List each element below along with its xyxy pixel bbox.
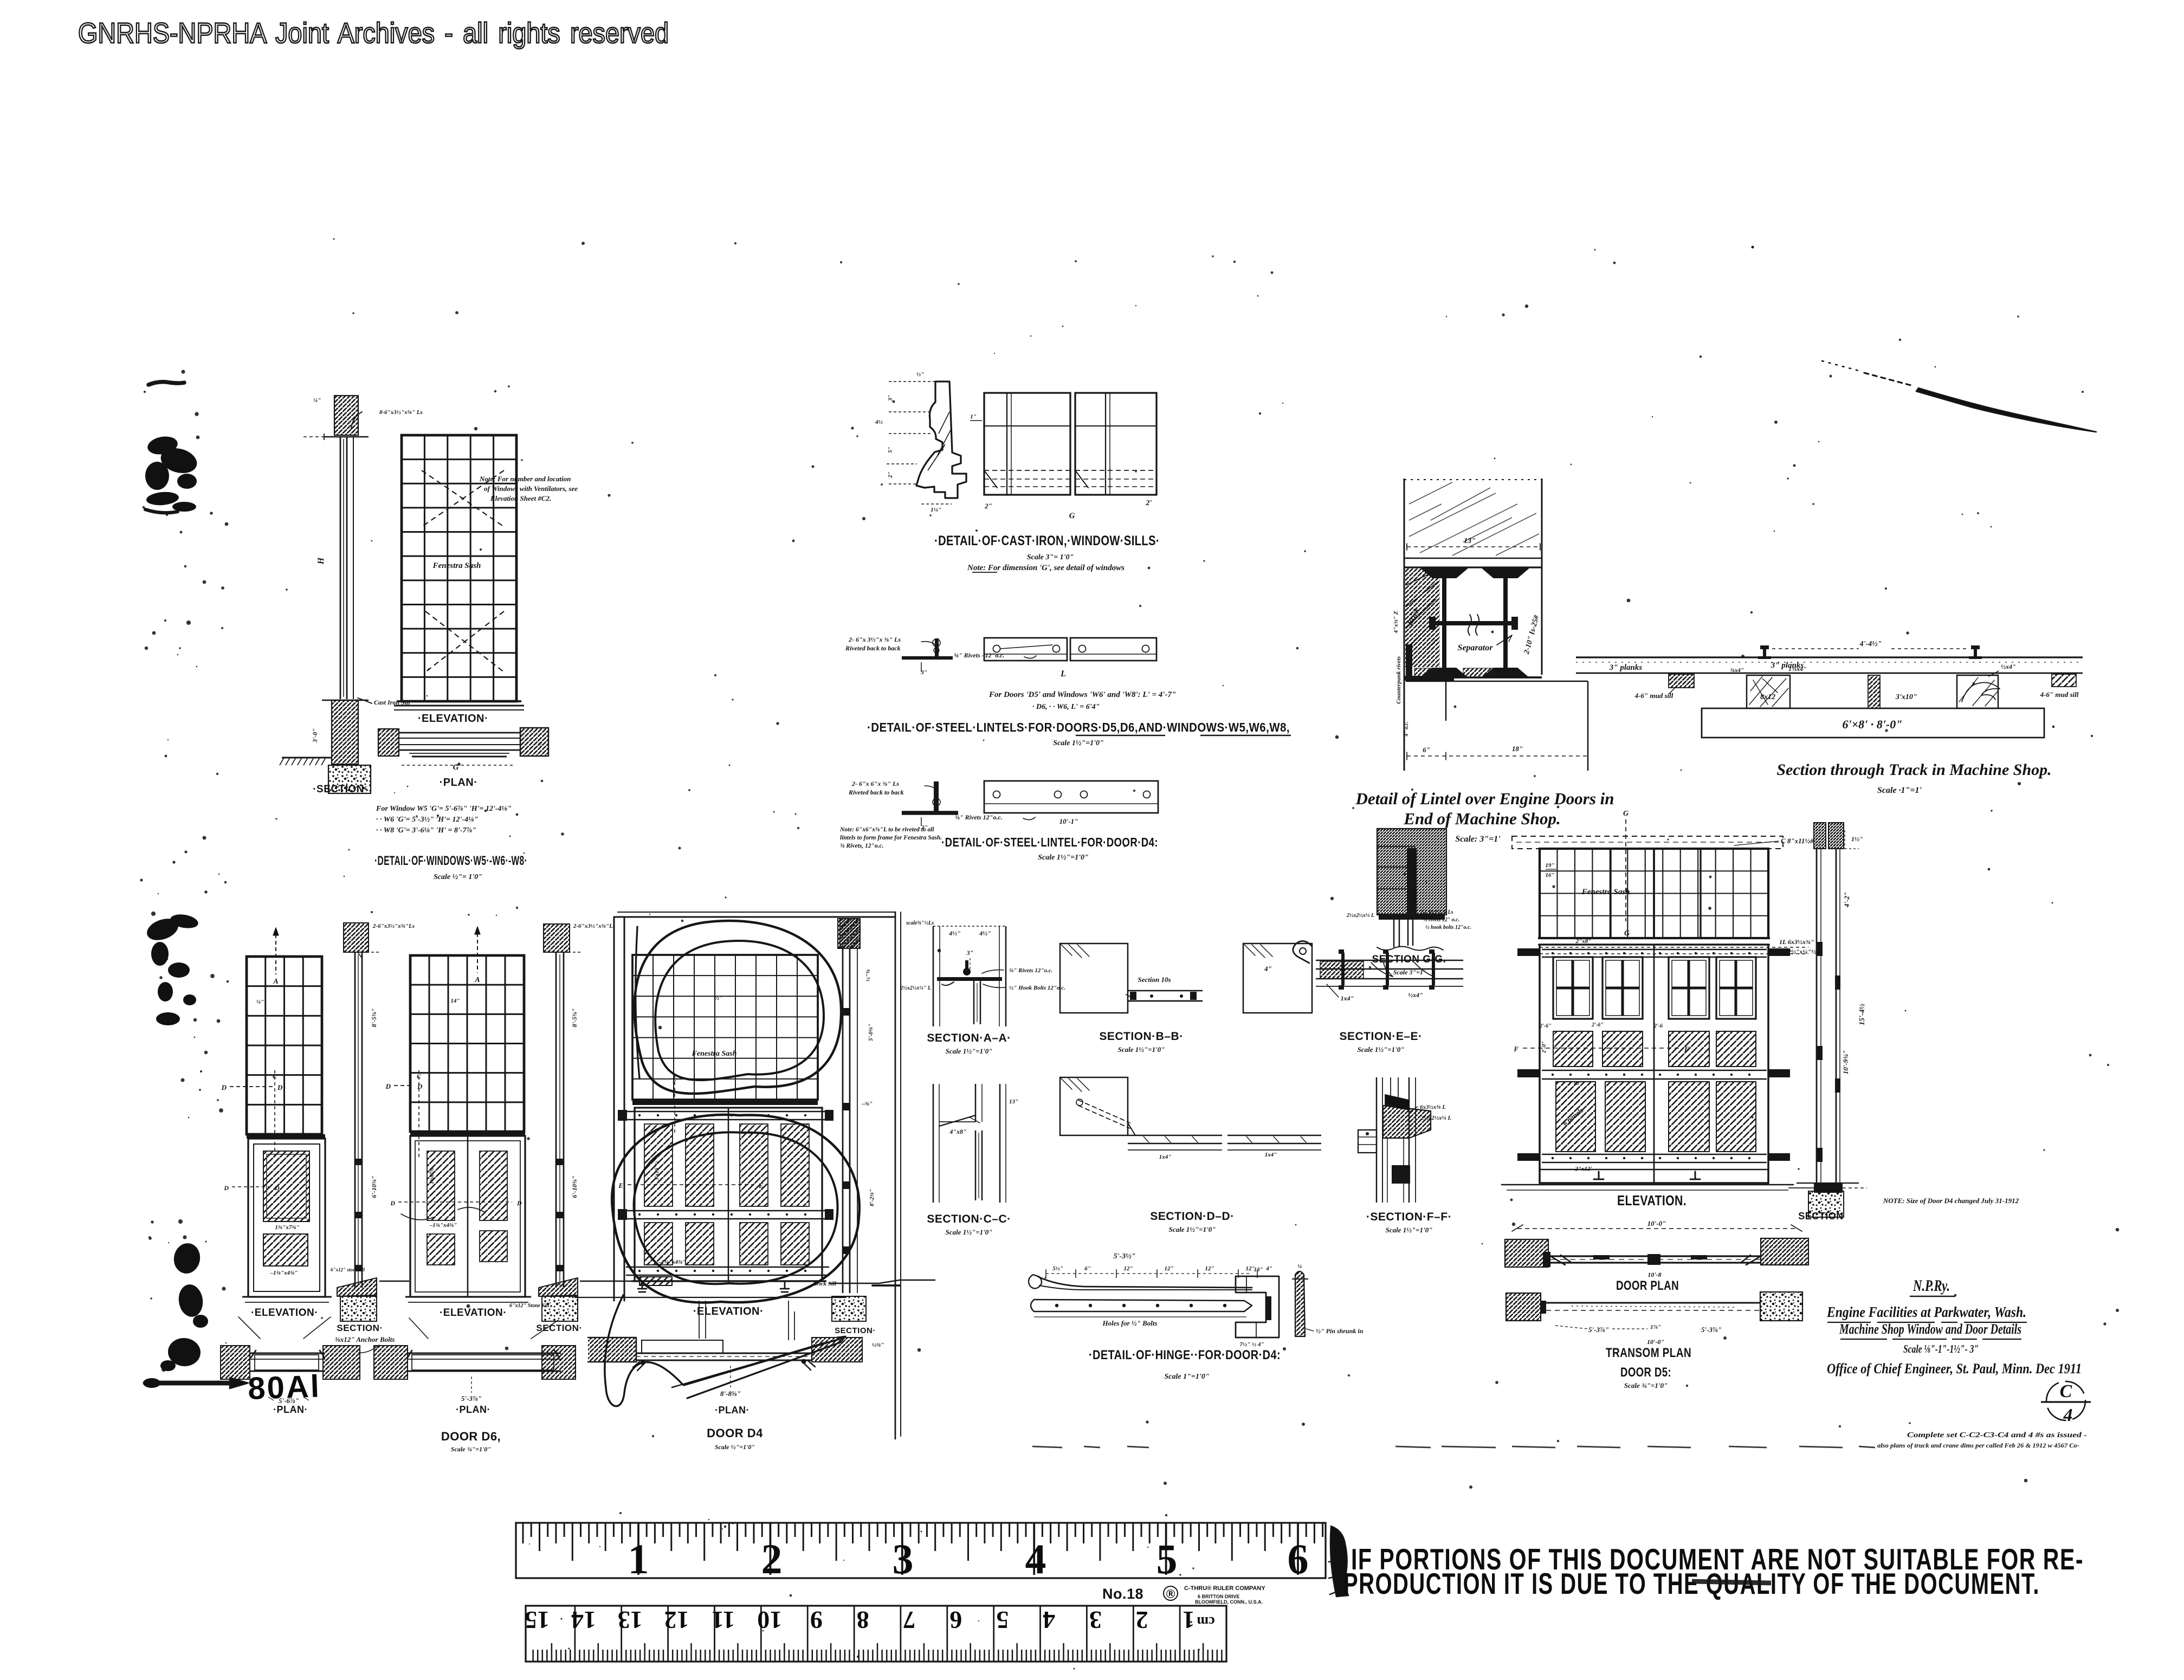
- svg-text:3'-0": 3'-0": [311, 728, 319, 743]
- svg-text:10: 10: [757, 1606, 782, 1634]
- svg-text:–1⅜"x4⅜": –1⅜"x4⅜": [429, 1222, 457, 1229]
- svg-text:4'-4½": 4'-4½": [1859, 640, 1882, 648]
- svg-text:8'-5⅜": 8'-5⅜": [370, 1009, 378, 1028]
- svg-text:Scale ½"=1'0": Scale ½"=1'0": [715, 1443, 755, 1451]
- svg-text:Scale ·1"=1': Scale ·1"=1': [1877, 786, 1922, 795]
- svg-text:Scale ¾"=1'0": Scale ¾"=1'0": [1624, 1381, 1668, 1390]
- svg-text:Fenestra Sash: Fenestra Sash: [432, 561, 481, 570]
- svg-text:Scale 1½"=1'0": Scale 1½"=1'0": [946, 1228, 993, 1236]
- svg-text:Scale 1½"=1'0": Scale 1½"=1'0": [1118, 1045, 1165, 1054]
- svg-text:Section 10s: Section 10s: [1138, 975, 1171, 984]
- svg-text:4" o.c.: 4" o.c.: [1404, 721, 1410, 737]
- svg-text:Note: For number and location: Note: For number and location: [479, 475, 571, 483]
- svg-text:1": 1": [970, 413, 977, 420]
- svg-text:D: D: [390, 1199, 395, 1207]
- svg-text:1L 6x3½x⅜": 1L 6x3½x⅜": [1779, 938, 1814, 946]
- svg-text:of Windows with Ventilators, s: of Windows with Ventilators, see: [484, 484, 578, 493]
- svg-text:·DETAIL·OF·WINDOWS·W5·-W6·-W8·: ·DETAIL·OF·WINDOWS·W5·-W6·-W8·: [374, 854, 527, 868]
- svg-text:2': 2': [1146, 499, 1152, 507]
- svg-text:3: 3: [893, 1535, 914, 1582]
- svg-text:Fenestra Sash.: Fenestra Sash.: [1581, 888, 1632, 896]
- svg-text:½ hook bolts 12"o.c.: ½ hook bolts 12"o.c.: [1425, 925, 1471, 931]
- svg-text:6"x12" stone sill: 6"x12" stone sill: [331, 1267, 365, 1272]
- svg-text:6": 6": [1423, 746, 1430, 754]
- svg-text:¼": ¼": [313, 397, 321, 404]
- svg-text:SЕCTION·Е–Е·: SЕCTION·Е–Е·: [1339, 1030, 1422, 1043]
- svg-text:C: C: [2060, 1381, 2072, 1401]
- svg-text:2'-0": 2'-0": [1541, 1041, 1547, 1054]
- svg-text:4½: 4½: [875, 419, 883, 425]
- svg-text:¼": ¼": [538, 739, 544, 746]
- svg-text:·PLAN·: ·PLAN·: [440, 777, 478, 789]
- svg-text:6: 6: [949, 1606, 962, 1634]
- svg-text:2": 2": [887, 471, 894, 479]
- svg-text:⅜" Rivets 12"o.c.: ⅜" Rivets 12"o.c.: [1009, 967, 1052, 974]
- svg-text:·DETAIL·OF·CAST·IRON,·WINDOW·S: ·DETAIL·OF·CAST·IRON,·WINDOW·SILLS·: [934, 533, 1160, 548]
- svg-text:½": ½": [714, 994, 723, 1001]
- svg-text:DOOR D4: DOOR D4: [707, 1426, 763, 1440]
- svg-text:6'-10⅜": 6'-10⅜": [370, 1176, 378, 1198]
- svg-text:8'-5⅜": 8'-5⅜": [571, 1009, 578, 1028]
- svg-text:10'-8: 10'-8: [1647, 1271, 1661, 1278]
- svg-text:2-L 6x3½ ⅜ Ls: 2-L 6x3½ ⅜ Ls: [1419, 909, 1453, 915]
- svg-text:2½x2½x¼ L: 2½x2½x¼ L: [1346, 913, 1374, 919]
- svg-text:8-6"x3½"x⅝" Ls: 8-6"x3½"x⅝" Ls: [379, 409, 423, 416]
- svg-text:C: C: [417, 1072, 422, 1080]
- svg-text:12": 12": [1205, 1265, 1214, 1272]
- svg-text:2'-6: 2'-6: [1653, 1023, 1663, 1029]
- svg-text:Office of Chief Engineer, S: Office of Chief Engineer, St. Paul, Minn…: [1827, 1361, 2082, 1377]
- svg-text:5": 5": [887, 447, 894, 453]
- svg-text:4'-2": 4'-2": [1843, 892, 1851, 908]
- svg-text:15: 15: [525, 1606, 550, 1634]
- svg-text:10'-0": 10'-0": [1647, 1338, 1664, 1346]
- svg-text:1: 1: [628, 1535, 649, 1582]
- svg-text:G: G: [1623, 810, 1629, 818]
- svg-text:G: G: [1624, 929, 1630, 938]
- svg-text:1⅜"x7⅜": 1⅜"x7⅜": [275, 1224, 299, 1231]
- svg-text:·ЕLЕVATION·: ·ЕLЕVATION·: [418, 713, 488, 725]
- svg-text:D: D: [516, 1199, 522, 1207]
- svg-text:F: F: [1513, 1045, 1519, 1053]
- svg-text:4: 4: [1025, 1535, 1046, 1582]
- svg-text:5½": 5½": [1052, 1265, 1063, 1272]
- svg-text:1⅞": 1⅞": [1650, 1324, 1661, 1330]
- svg-text:Scale ⅛"-1"-1½"- 3": Scale ⅛"-1"-1½"- 3": [1903, 1342, 1979, 1355]
- svg-text:3: 3: [1089, 1606, 1102, 1634]
- svg-text:15'-4½: 15'-4½: [1858, 1003, 1866, 1025]
- svg-text:16": 16": [1545, 872, 1554, 878]
- svg-text:Detail of Lintel over Engine D: Detail of Lintel over Engine Doors in: [1355, 789, 1614, 808]
- svg-text:DOOR D5:: DOOR D5:: [1620, 1365, 1671, 1380]
- svg-text:Scale ½"= 1'0": Scale ½"= 1'0": [434, 873, 482, 881]
- svg-text:Scale: 3"=1': Scale: 3"=1': [1455, 835, 1501, 844]
- svg-text:1x4": 1x4": [1265, 1152, 1277, 1158]
- svg-text:C: C: [273, 1072, 277, 1080]
- svg-text:⅜x4": ⅜x4": [1730, 667, 1744, 674]
- svg-text:8: 8: [857, 1606, 869, 1634]
- svg-text:·PLAN·: ·PLAN·: [456, 1404, 490, 1415]
- svg-text:NOTE: Size of Door D4 changed: NOTE: Size of Door D4 changed July 31-19…: [1883, 1197, 2019, 1205]
- svg-text:·DЕTAIL·OF·HINGЕ··FOR·DOOR·D4:: ·DЕTAIL·OF·HINGЕ··FOR·DOOR·D4:: [1089, 1348, 1281, 1362]
- svg-text:ЕLЕVATION.: ЕLЕVATION.: [1617, 1192, 1687, 1209]
- svg-text:6: 6: [1288, 1535, 1309, 1582]
- svg-text:For Window W5 'G'= 5'-6⅞": For Window W5 'G'= 5'-6⅞" 'H'= 12'-4⅛": [376, 805, 512, 813]
- svg-text:For Doors 'D5' and Windows 'W6: For Doors 'D5' and Windows 'W6' and 'W8'…: [988, 690, 1176, 699]
- svg-text:SЕCTION·D–D·: SЕCTION·D–D·: [1150, 1210, 1234, 1223]
- svg-text:–1⅜"x4⅜": –1⅜"x4⅜": [658, 1259, 686, 1265]
- svg-text:8'-8⅝": 8'-8⅝": [720, 1390, 741, 1398]
- svg-text:TRANSOM PLAN: TRANSOM PLAN: [1606, 1346, 1691, 1360]
- svg-text:SЕCTION·: SЕCTION·: [835, 1326, 876, 1335]
- svg-text:·DETAIL·OF·STEEL·LINTELS·FOR·D: ·DETAIL·OF·STEEL·LINTELS·FOR·DOORS·D5,D6…: [867, 720, 1290, 734]
- svg-text:Separator: Separator: [1458, 643, 1494, 652]
- svg-text:–1⅜"x4⅜": –1⅜"x4⅜": [270, 1270, 298, 1276]
- svg-text:Note: 6"x6"x⅜"L to be riveted: Note: 6"x6"x⅜"L to be riveted to all: [839, 826, 934, 833]
- svg-text:4"x⅜" Z: 4"x⅜" Z: [1393, 611, 1399, 634]
- svg-text:cm: cm: [1197, 1614, 1215, 1630]
- svg-text:6'-10⅜": 6'-10⅜": [571, 1176, 578, 1198]
- svg-text:13": 13": [1009, 1099, 1018, 1105]
- svg-text:14": 14": [450, 998, 460, 1004]
- svg-text:·DETAIL·OF·STEEL·LINTEL·FOR·DO: ·DETAIL·OF·STEEL·LINTEL·FOR·DOOR·D4:: [941, 835, 1158, 849]
- svg-text:–⅜": –⅜": [861, 1101, 873, 1107]
- svg-text:F: F: [1684, 1045, 1689, 1053]
- svg-text:1x4": 1x4": [1159, 1154, 1172, 1160]
- svg-text:Complete set C-C2-C3-C4 a: Complete set C-C2-C3-C4 and 4 #s as issu…: [1907, 1431, 2087, 1439]
- svg-text:2: 2: [761, 1535, 783, 1582]
- svg-text:3": 3": [887, 395, 894, 402]
- svg-text:5'-3½": 5'-3½": [1114, 1252, 1136, 1261]
- svg-text:DOOR PLAN: DOOR PLAN: [1616, 1278, 1679, 1293]
- svg-text:Scale 1½"=1'0": Scale 1½"=1'0": [1169, 1225, 1216, 1233]
- svg-text:3": 3": [920, 669, 927, 676]
- svg-text:7½" ½ 4": 7½" ½ 4": [1239, 1341, 1264, 1348]
- svg-text:Machine Shop Window and Door D: Machine Shop Window and Door Details: [1839, 1321, 2021, 1337]
- svg-text:4: 4: [1043, 1606, 1055, 1634]
- svg-text:D: D: [274, 1184, 280, 1192]
- svg-text:⅜ Rivets, 12"o.c.: ⅜ Rivets, 12"o.c.: [840, 843, 883, 849]
- svg-text:3" planks: 3" planks: [1609, 663, 1643, 672]
- svg-text:14: 14: [571, 1606, 596, 1634]
- svg-text:Holes for ½" Bolts: Holes for ½" Bolts: [1102, 1319, 1157, 1327]
- svg-text:5: 5: [1156, 1535, 1178, 1582]
- svg-text:6x3½x⅜ L: 6x3½x⅜ L: [1420, 1104, 1446, 1110]
- svg-text:2: 2: [1136, 1606, 1148, 1634]
- svg-text:¼": ¼": [256, 999, 264, 1005]
- svg-text:Counterpunk rivets: Counterpunk rivets: [1395, 656, 1402, 704]
- svg-text:lintels to form frame for Fene: lintels to form frame for Fenestra Sash.: [840, 835, 942, 841]
- svg-text:½x4": ½x4": [2001, 663, 2016, 670]
- svg-text:Riveted back to back: Riveted back to back: [845, 644, 901, 652]
- svg-text:4"x8": 4"x8": [949, 1128, 966, 1135]
- svg-text:C-THRU® RULER COMPANY: C-THRU® RULER COMPANY: [1184, 1585, 1265, 1592]
- svg-text:No.18: No.18: [1102, 1586, 1143, 1602]
- svg-text:4½": 4½": [979, 929, 991, 937]
- svg-text:Note: For dimension 'G', see: Note: For dimension 'G', see detail of w…: [967, 564, 1125, 572]
- svg-text:D: D: [277, 1083, 283, 1091]
- svg-text:½x4": ½x4": [1408, 991, 1423, 999]
- svg-text:8x12: 8x12: [1760, 693, 1775, 701]
- svg-text:8'-2⅜": 8'-2⅜": [869, 1189, 875, 1206]
- svg-text:Ⓡ: Ⓡ: [1166, 1589, 1175, 1599]
- svg-text:Riveted back to back: Riveted back to back: [848, 789, 904, 796]
- svg-text:A: A: [474, 976, 480, 984]
- svg-text:5'-3⅞": 5'-3⅞": [461, 1394, 482, 1403]
- svg-text:Fenestra Sash: Fenestra Sash: [692, 1050, 737, 1058]
- svg-text:½": ½": [916, 371, 924, 378]
- svg-text:·ЕLЕVATION·: ·ЕLЕVATION·: [693, 1306, 764, 1317]
- svg-text:·ЕLЕVATION·: ·ЕLЕVATION·: [440, 1307, 507, 1319]
- svg-text:6": 6": [1084, 1265, 1091, 1272]
- svg-text:9: 9: [810, 1606, 823, 1634]
- svg-text:1x4": 1x4": [1341, 994, 1354, 1002]
- svg-text:10'-1": 10'-1": [1059, 817, 1078, 825]
- svg-text:⅜ rivets 12" o.c.: ⅜ rivets 12" o.c.: [1423, 917, 1459, 923]
- svg-text:C 8"x11½#: C 8"x11½#: [1781, 837, 1814, 845]
- svg-text:SЕCTION·A–A·: SЕCTION·A–A·: [927, 1032, 1011, 1044]
- svg-text:4-6" mud sill: 4-6" mud sill: [2040, 690, 2079, 699]
- svg-text:D: D: [385, 1082, 391, 1090]
- svg-text:SЕCTION·: SЕCTION·: [337, 1323, 383, 1333]
- svg-text:1: 1: [1183, 1606, 1195, 1634]
- svg-text:10'-0": 10'-0": [1647, 1219, 1666, 1227]
- svg-text:3'x16"½: 3'x16"½: [654, 1161, 660, 1181]
- svg-text:2½x2½x¼ L: 2½x2½x¼ L: [1420, 1115, 1452, 1121]
- svg-text:2'-6": 2'-6": [1591, 1022, 1604, 1028]
- svg-text:3": 3": [966, 949, 974, 957]
- svg-text:6'×8' · 8'-0": 6'×8' · 8'-0": [1843, 718, 1903, 731]
- svg-text:· · W6 'G'= 5'-3½: · · W6 'G'= 5'-3½" 'H'= 12'-4⅛": [376, 816, 478, 824]
- svg-text:DOOR D6,: DOOR D6,: [441, 1430, 501, 1443]
- svg-text:SЕCTION·: SЕCTION·: [536, 1323, 582, 1333]
- svg-text:18": 18": [1512, 745, 1523, 753]
- svg-text:·SЕCTION·: ·SЕCTION·: [313, 784, 368, 795]
- svg-text:also plans of truck and crane: also plans of truck and crane dims per c…: [1877, 1442, 2079, 1449]
- svg-text:Scale 1½"=1'0": Scale 1½"=1'0": [946, 1047, 993, 1055]
- svg-text:2½x2½x¼" L: 2½x2½x¼" L: [900, 985, 931, 991]
- svg-text:½"⅝: ½"⅝: [865, 970, 871, 982]
- svg-text:4-6" mud sill: 4-6" mud sill: [1634, 692, 1673, 700]
- svg-text:N.P.Ry.: N.P.Ry.: [1912, 1277, 1950, 1295]
- svg-text:L: L: [1060, 669, 1066, 679]
- svg-text:Scale 1"=1'0": Scale 1"=1'0": [1164, 1373, 1209, 1381]
- svg-text:2- 6"x 3½"x ⅜" Ls: 2- 6"x 3½"x ⅜" Ls: [848, 636, 901, 643]
- svg-text:F: F: [672, 1077, 677, 1084]
- svg-text:4": 4": [1264, 965, 1272, 973]
- svg-text:Scale 3"= 1'0": Scale 3"= 1'0": [1027, 553, 1074, 561]
- svg-text:SЕCTION·C–C·: SЕCTION·C–C·: [927, 1213, 1011, 1225]
- svg-text:6 BRITTON DRIVE: 6 BRITTON DRIVE: [1198, 1594, 1239, 1599]
- svg-text:2'-6": 2'-6": [1539, 1023, 1552, 1029]
- svg-text:Scale 1½"=1'0": Scale 1½"=1'0": [1038, 854, 1089, 862]
- svg-text:BLOOMFIELD, CONN., U.S.A.: BLOOMFIELD, CONN., U.S.A.: [1195, 1599, 1263, 1605]
- svg-text:·PLAN·: ·PLAN·: [715, 1405, 749, 1416]
- svg-text:Section through Track in Machi: Section through Track in Machine Shop.: [1776, 761, 2051, 779]
- svg-text:4½": 4½": [948, 929, 961, 937]
- svg-text:D: D: [223, 1184, 229, 1192]
- svg-text:End of Machine Shop.: End of Machine Shop.: [1403, 809, 1560, 828]
- svg-text:19": 19": [1545, 862, 1554, 869]
- svg-text:E: E: [618, 1181, 623, 1190]
- svg-text:Engine Facilities at Parkw: Engine Facilities at Parkwater, Wash.: [1826, 1304, 2026, 1320]
- svg-text:5'-3⅞": 5'-3⅞": [1588, 1326, 1609, 1334]
- svg-text:80Аl: 80Аl: [247, 1368, 321, 1406]
- svg-text:2-6"x3½"x⅜"Ls: 2-6"x3½"x⅜"Ls: [573, 923, 615, 929]
- svg-text:½⅜": ½⅜": [872, 1342, 884, 1348]
- svg-text:2": 2": [984, 502, 992, 510]
- svg-text:E: E: [758, 1181, 764, 1190]
- svg-text:·ЕLЕVATION·: ·ЕLЕVATION·: [251, 1307, 318, 1319]
- svg-text:Elevation Sheet #C2.: Elevation Sheet #C2.: [490, 494, 551, 502]
- svg-text:PRODUCTION IT IS DUE TO THE QU: PRODUCTION IT IS DUE TO THE QUALITY OF T…: [1343, 1567, 2040, 1600]
- svg-text:5: 5: [996, 1606, 1009, 1634]
- svg-text:13": 13": [1464, 537, 1476, 545]
- svg-text:SЕCTION·B–B·: SЕCTION·B–B·: [1099, 1030, 1183, 1043]
- svg-text:11: 11: [712, 1606, 735, 1634]
- svg-text:scale⅝"½Ls: scale⅝"½Ls: [906, 920, 934, 926]
- svg-text:12": 12": [1123, 1265, 1133, 1272]
- svg-text:Scale 1½"=1'0": Scale 1½"=1'0": [1053, 739, 1104, 747]
- svg-text:A: A: [273, 978, 278, 986]
- svg-text:5'-0⅜": 5'-0⅜": [868, 1024, 874, 1041]
- svg-text:7: 7: [903, 1606, 915, 1634]
- svg-text:·SЕCTION·F–F·: ·SЕCTION·F–F·: [1366, 1211, 1452, 1223]
- svg-text:4": 4": [1265, 1265, 1272, 1272]
- svg-text:G: G: [1069, 512, 1075, 520]
- svg-text:Scale 1½"=1'0": Scale 1½"=1'0": [1358, 1045, 1405, 1054]
- svg-text:1½": 1½": [1851, 835, 1863, 843]
- svg-text:SЕCTION: SЕCTION: [1798, 1211, 1844, 1222]
- svg-text:1¼": 1¼": [931, 507, 941, 513]
- svg-text:½" Hook Bolts 12"o.c.: ½" Hook Bolts 12"o.c.: [1009, 985, 1065, 991]
- svg-text:10'-9¾": 10'-9¾": [1841, 1050, 1850, 1074]
- svg-text:Scale 1½"=1'0": Scale 1½"=1'0": [1386, 1226, 1433, 1234]
- svg-text:· · W8 'G'= 3'-6⅛: · · W8 'G'= 3'-6⅛" 'H' = 8'-7⅞": [376, 826, 476, 835]
- svg-text:Scale ¾"=1'0": Scale ¾"=1'0": [451, 1445, 491, 1453]
- svg-text:GNRHS-NPRHA Joint Archives - a: GNRHS-NPRHA Joint Archives - all rights …: [78, 17, 669, 49]
- svg-text:D: D: [417, 1082, 423, 1090]
- svg-text:4: 4: [2063, 1405, 2073, 1425]
- svg-text:3'x10": 3'x10": [1895, 693, 1917, 701]
- svg-text:2- 6"x 6"x ⅜" Ls: 2- 6"x 6"x ⅜" Ls: [851, 780, 899, 787]
- svg-text:D: D: [221, 1083, 227, 1091]
- svg-text:½" Pin shrunk in: ½" Pin shrunk in: [1316, 1327, 1364, 1335]
- svg-text:·PLAN·: ·PLAN·: [273, 1404, 308, 1415]
- svg-text:1¾x4": 1¾x4": [1788, 665, 1807, 673]
- svg-text:2"x8": 2"x8": [1575, 938, 1592, 945]
- svg-text:13: 13: [618, 1606, 643, 1634]
- svg-text:13": 13": [1253, 1267, 1263, 1273]
- svg-text:H: H: [316, 557, 326, 565]
- svg-text:⅜" Rivets 12"o.c.: ⅜" Rivets 12"o.c.: [955, 813, 1003, 821]
- svg-text:1⅜x7⅜: 1⅜x7⅜: [429, 1168, 435, 1185]
- svg-text:12: 12: [664, 1606, 689, 1634]
- svg-text:¼: ¼: [1297, 1263, 1302, 1270]
- svg-text:5'-3⅞": 5'-3⅞": [1701, 1326, 1722, 1334]
- svg-text:· D6, · ·: · D6, · · W6, L' = 6'4": [1032, 703, 1100, 711]
- svg-text:12": 12": [1164, 1265, 1173, 1272]
- svg-text:⅜x12" Anchor Bolts: ⅜x12" Anchor Bolts: [335, 1335, 395, 1343]
- svg-text:2-6"x3½"x⅜"Ls: 2-6"x3½"x⅜"Ls: [372, 923, 415, 929]
